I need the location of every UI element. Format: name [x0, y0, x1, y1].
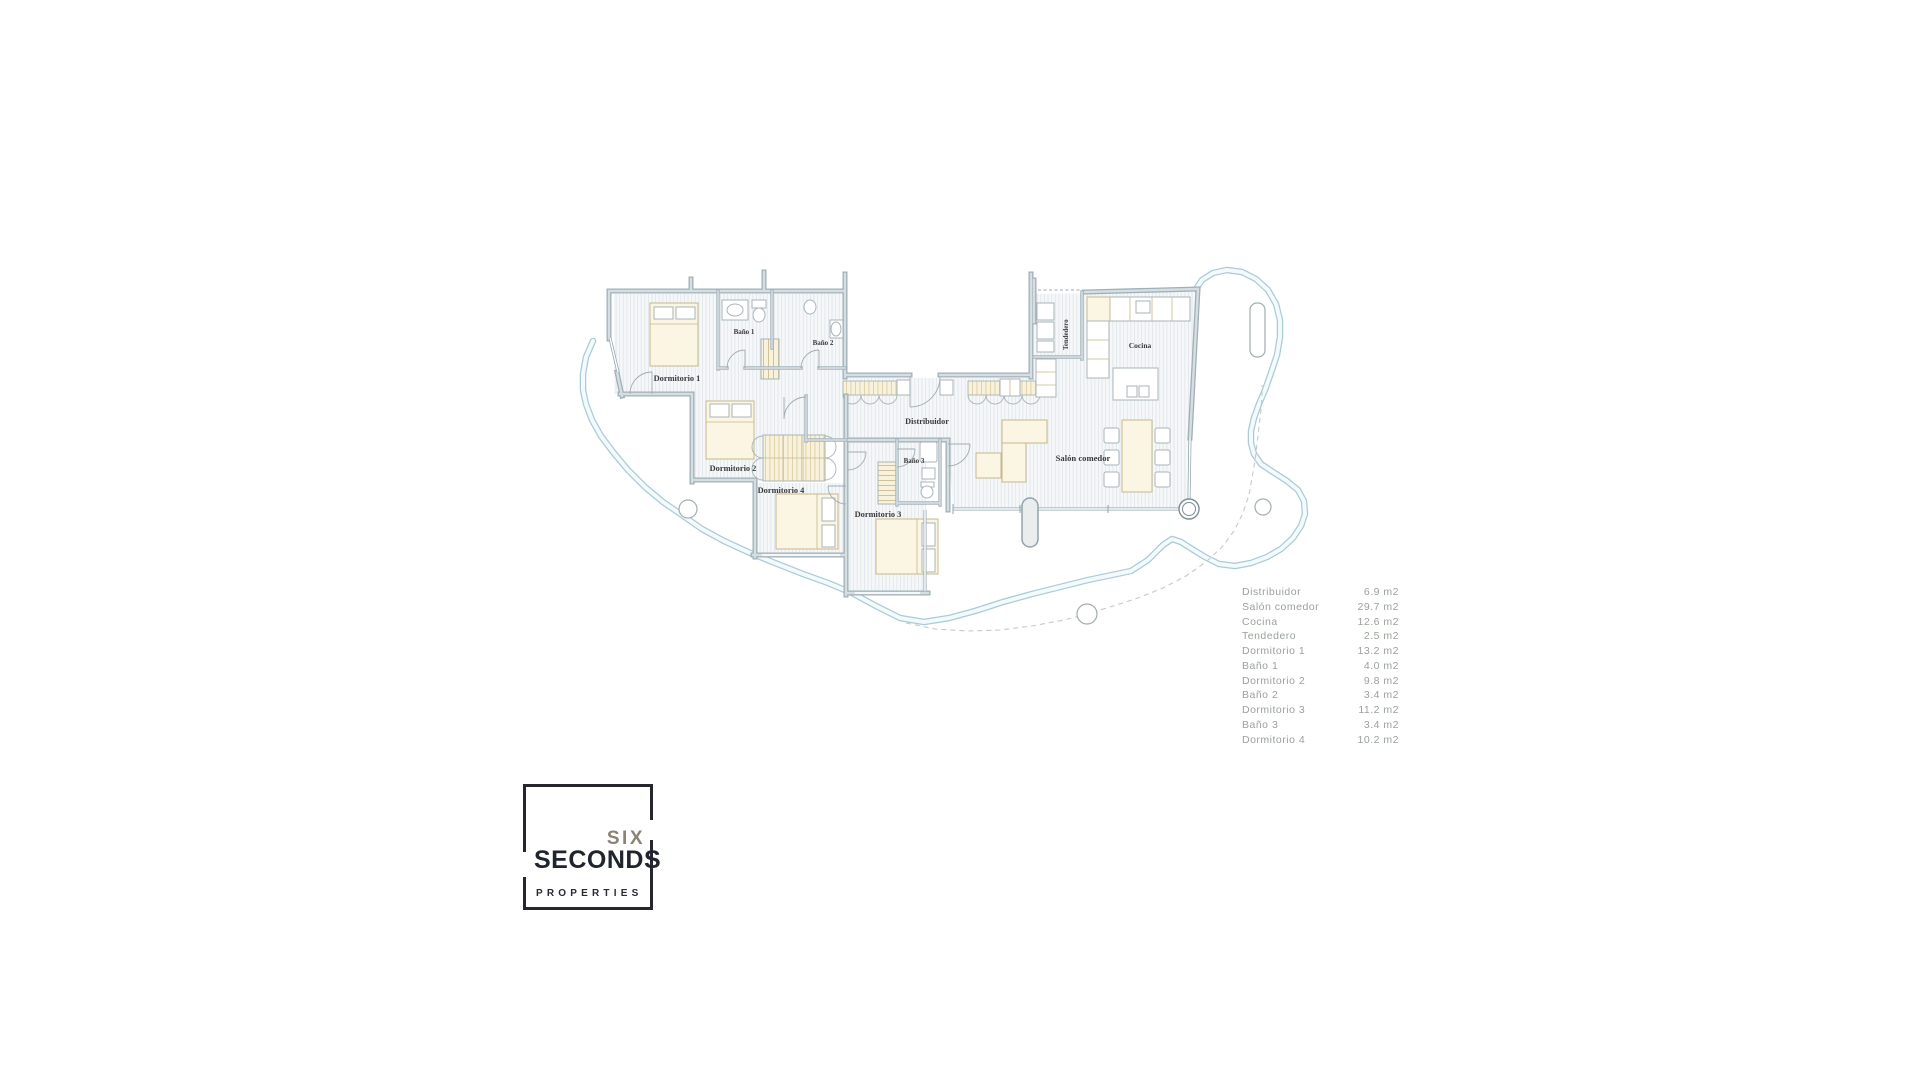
- planter-pill-bottom: [1022, 498, 1038, 547]
- legend-room-area: 9.8 m2: [1364, 674, 1399, 689]
- label-dormitorio-3: Dormitorio 3: [855, 510, 902, 519]
- legend-row: Dormitorio 311.2 m2: [1242, 703, 1399, 718]
- stairs-lower: [878, 462, 897, 504]
- legend-room-name: Dormitorio 2: [1242, 674, 1305, 689]
- label-dormitorio-1: Dormitorio 1: [654, 374, 701, 383]
- planter-pill-right: [1250, 303, 1265, 357]
- planter-circle-right: [1255, 499, 1271, 515]
- label-salon-comedor: Salón comedor: [1056, 453, 1111, 463]
- logo-border-bottom: [523, 907, 653, 910]
- logo-seconds-text: SECONDS: [534, 846, 661, 875]
- legend-room-name: Dormitorio 3: [1242, 703, 1305, 718]
- planter-circle-bottom: [1077, 604, 1097, 624]
- label-bano-3: Baño 3: [904, 457, 925, 465]
- legend-room-name: Baño 2: [1242, 688, 1278, 703]
- label-bano-1: Baño 1: [734, 328, 755, 336]
- bed-dormitorio-1: [650, 303, 698, 366]
- legend-room-name: Salón comedor: [1242, 600, 1319, 615]
- legend-room-name: Dormitorio 4: [1242, 733, 1305, 748]
- bed-dormitorio-2: [706, 401, 754, 459]
- legend-row: Baño 23.4 m2: [1242, 688, 1399, 703]
- legend-row: Cocina12.6 m2: [1242, 615, 1399, 630]
- legend-row: Tendedero2.5 m2: [1242, 629, 1399, 644]
- legend-row: Dormitorio 29.8 m2: [1242, 674, 1399, 689]
- bed-dormitorio-4: [776, 494, 838, 549]
- legend-row: Salón comedor29.7 m2: [1242, 600, 1399, 615]
- logo-properties-text: PROPERTIES: [536, 888, 642, 899]
- wardrobe-block: [752, 435, 836, 481]
- legend-room-name: Baño 3: [1242, 718, 1278, 733]
- label-distribuidor: Distribuidor: [905, 417, 949, 426]
- label-tendedero: Tendedero: [1063, 319, 1070, 350]
- legend-room-area: 2.5 m2: [1364, 629, 1399, 644]
- logo-border-left-upper: [523, 784, 526, 852]
- legend-room-area: 29.7 m2: [1358, 600, 1399, 615]
- label-cocina: Cocina: [1129, 341, 1152, 350]
- legend-row: Dormitorio 410.2 m2: [1242, 733, 1399, 748]
- logo-border-left-lower: [523, 877, 526, 910]
- bathroom-1-fixtures: [722, 300, 766, 322]
- legend-room-name: Baño 1: [1242, 659, 1278, 674]
- floor-plan-svg: Dormitorio 1 Baño 1 Baño 2 Dormitorio 2 …: [0, 0, 1920, 1080]
- logo-border-top: [523, 784, 653, 787]
- column: [1179, 499, 1199, 519]
- legend-row: Distribuidor6.9 m2: [1242, 585, 1399, 600]
- dining-set: [1104, 420, 1170, 492]
- legend-row: Baño 14.0 m2: [1242, 659, 1399, 674]
- legend-room-area: 10.2 m2: [1358, 733, 1399, 748]
- legend-room-area: 11.2 m2: [1358, 703, 1399, 718]
- label-dormitorio-4: Dormitorio 4: [758, 486, 806, 495]
- six-seconds-properties-logo: SIX SECONDS PROPERTIES: [523, 784, 653, 910]
- tendedero-appliances: [1037, 303, 1054, 352]
- page: Dormitorio 1 Baño 1 Baño 2 Dormitorio 2 …: [0, 0, 1920, 1080]
- legend-row: Dormitorio 113.2 m2: [1242, 644, 1399, 659]
- label-dormitorio-2: Dormitorio 2: [710, 464, 757, 473]
- legend-row: Baño 33.4 m2: [1242, 718, 1399, 733]
- legend-room-area: 12.6 m2: [1358, 615, 1399, 630]
- legend-room-area: 3.4 m2: [1364, 718, 1399, 733]
- room-area-legend: Distribuidor6.9 m2 Salón comedor29.7 m2 …: [1242, 585, 1399, 747]
- kitchen-island: [1113, 368, 1158, 400]
- legend-room-name: Tendedero: [1242, 629, 1296, 644]
- legend-room-name: Distribuidor: [1242, 585, 1301, 600]
- stairs-upper: [761, 339, 779, 379]
- planter-circle-left: [679, 500, 697, 518]
- legend-room-name: Cocina: [1242, 615, 1278, 630]
- legend-room-area: 6.9 m2: [1364, 585, 1399, 600]
- legend-room-name: Dormitorio 1: [1242, 644, 1305, 659]
- bathroom-3-fixtures: [920, 442, 937, 498]
- label-bano-2: Baño 2: [813, 339, 834, 347]
- legend-room-area: 13.2 m2: [1358, 644, 1399, 659]
- legend-room-area: 4.0 m2: [1364, 659, 1399, 674]
- legend-room-area: 3.4 m2: [1364, 688, 1399, 703]
- bed-dormitorio-3: [876, 519, 938, 574]
- logo-border-right-upper: [650, 784, 653, 820]
